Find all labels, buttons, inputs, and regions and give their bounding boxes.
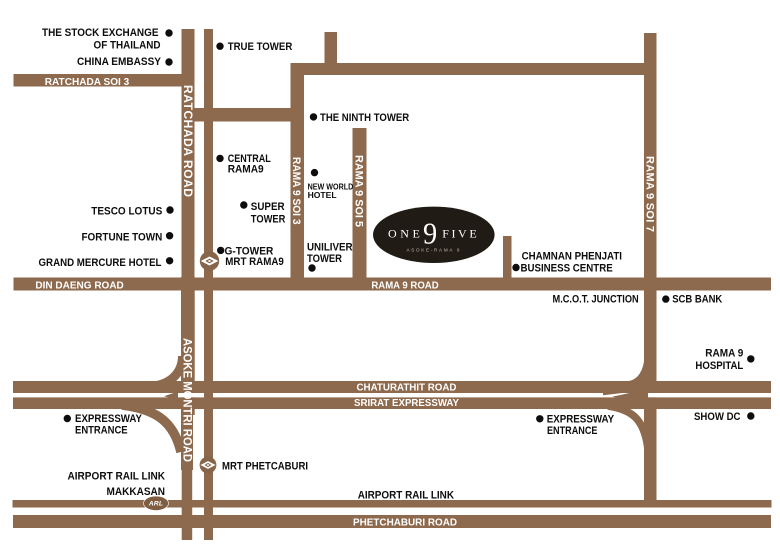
svg-text:SRIRAT EXPRESSWAY: SRIRAT EXPRESSWAY [354,398,459,409]
svg-text:ONE: ONE [388,227,423,241]
svg-text:HOSPITAL: HOSPITAL [695,360,743,372]
svg-text:CHATURATHIT ROAD: CHATURATHIT ROAD [357,383,457,394]
svg-text:CHAMNAN PHENJATI: CHAMNAN PHENJATI [522,250,622,262]
svg-text:SCB BANK: SCB BANK [672,294,722,306]
svg-text:MAKKASAN: MAKKASAN [107,486,166,498]
svg-text:THE NINTH TOWER: THE NINTH TOWER [320,112,409,124]
svg-text:M.C.O.T. JUNCTION: M.C.O.T. JUNCTION [553,294,639,306]
svg-text:9: 9 [423,215,437,250]
svg-text:ASOKE MONTRI ROAD: ASOKE MONTRI ROAD [180,338,194,462]
svg-text:GRAND MERCURE HOTEL: GRAND MERCURE HOTEL [39,257,162,269]
svg-text:OF THAILAND: OF THAILAND [94,39,161,51]
svg-text:HOTEL: HOTEL [308,190,337,200]
svg-text:FIVE: FIVE [442,227,479,241]
svg-text:DIN DAENG ROAD: DIN DAENG ROAD [35,279,124,291]
svg-text:ARL: ARL [148,501,164,508]
svg-text:ENTRANCE: ENTRANCE [75,424,128,436]
svg-text:RATCHADA ROAD: RATCHADA ROAD [181,85,195,197]
svg-text:EXPRESSWAY: EXPRESSWAY [547,413,615,425]
svg-text:RAMA 9: RAMA 9 [705,348,743,360]
svg-text:TRUE TOWER: TRUE TOWER [228,41,293,53]
svg-text:RATCHADA SOI 3: RATCHADA SOI 3 [45,76,130,88]
svg-text:EXPRESSWAY: EXPRESSWAY [75,413,143,425]
svg-text:BUSINESS CENTRE: BUSINESS CENTRE [521,262,613,274]
svg-text:MRT PHETCABURI: MRT PHETCABURI [222,460,308,472]
svg-text:SUPER: SUPER [251,201,285,213]
svg-text:UNILIVER: UNILIVER [307,242,353,254]
svg-text:ENTRANCE: ENTRANCE [547,425,598,437]
svg-text:RAMA 9 SOI 7: RAMA 9 SOI 7 [643,156,655,232]
svg-text:ASOKE-RAMA 9: ASOKE-RAMA 9 [406,247,461,252]
svg-text:MRT RAMA9: MRT RAMA9 [225,256,283,268]
svg-text:CHINA EMBASSY: CHINA EMBASSY [77,56,162,68]
svg-text:AIRPORT RAIL LINK: AIRPORT RAIL LINK [68,471,166,483]
svg-text:TOWER: TOWER [307,253,342,265]
svg-text:RAMA9: RAMA9 [228,164,264,176]
svg-text:RAMA 9 SOI 3: RAMA 9 SOI 3 [290,157,302,225]
svg-text:FORTUNE TOWN: FORTUNE TOWN [82,231,163,243]
svg-text:RAMA 9 ROAD: RAMA 9 ROAD [371,279,439,291]
svg-text:RAMA 9 SOI 5: RAMA 9 SOI 5 [353,155,365,227]
svg-text:PHETCHABURI ROAD: PHETCHABURI ROAD [353,517,457,529]
svg-text:SHOW DC: SHOW DC [694,411,741,423]
svg-text:TOWER: TOWER [251,214,286,226]
svg-text:THE STOCK EXCHANGE: THE STOCK EXCHANGE [42,27,159,39]
svg-text:TESCO LOTUS: TESCO LOTUS [91,206,162,218]
svg-text:AIRPORT RAIL LINK: AIRPORT RAIL LINK [358,490,454,502]
